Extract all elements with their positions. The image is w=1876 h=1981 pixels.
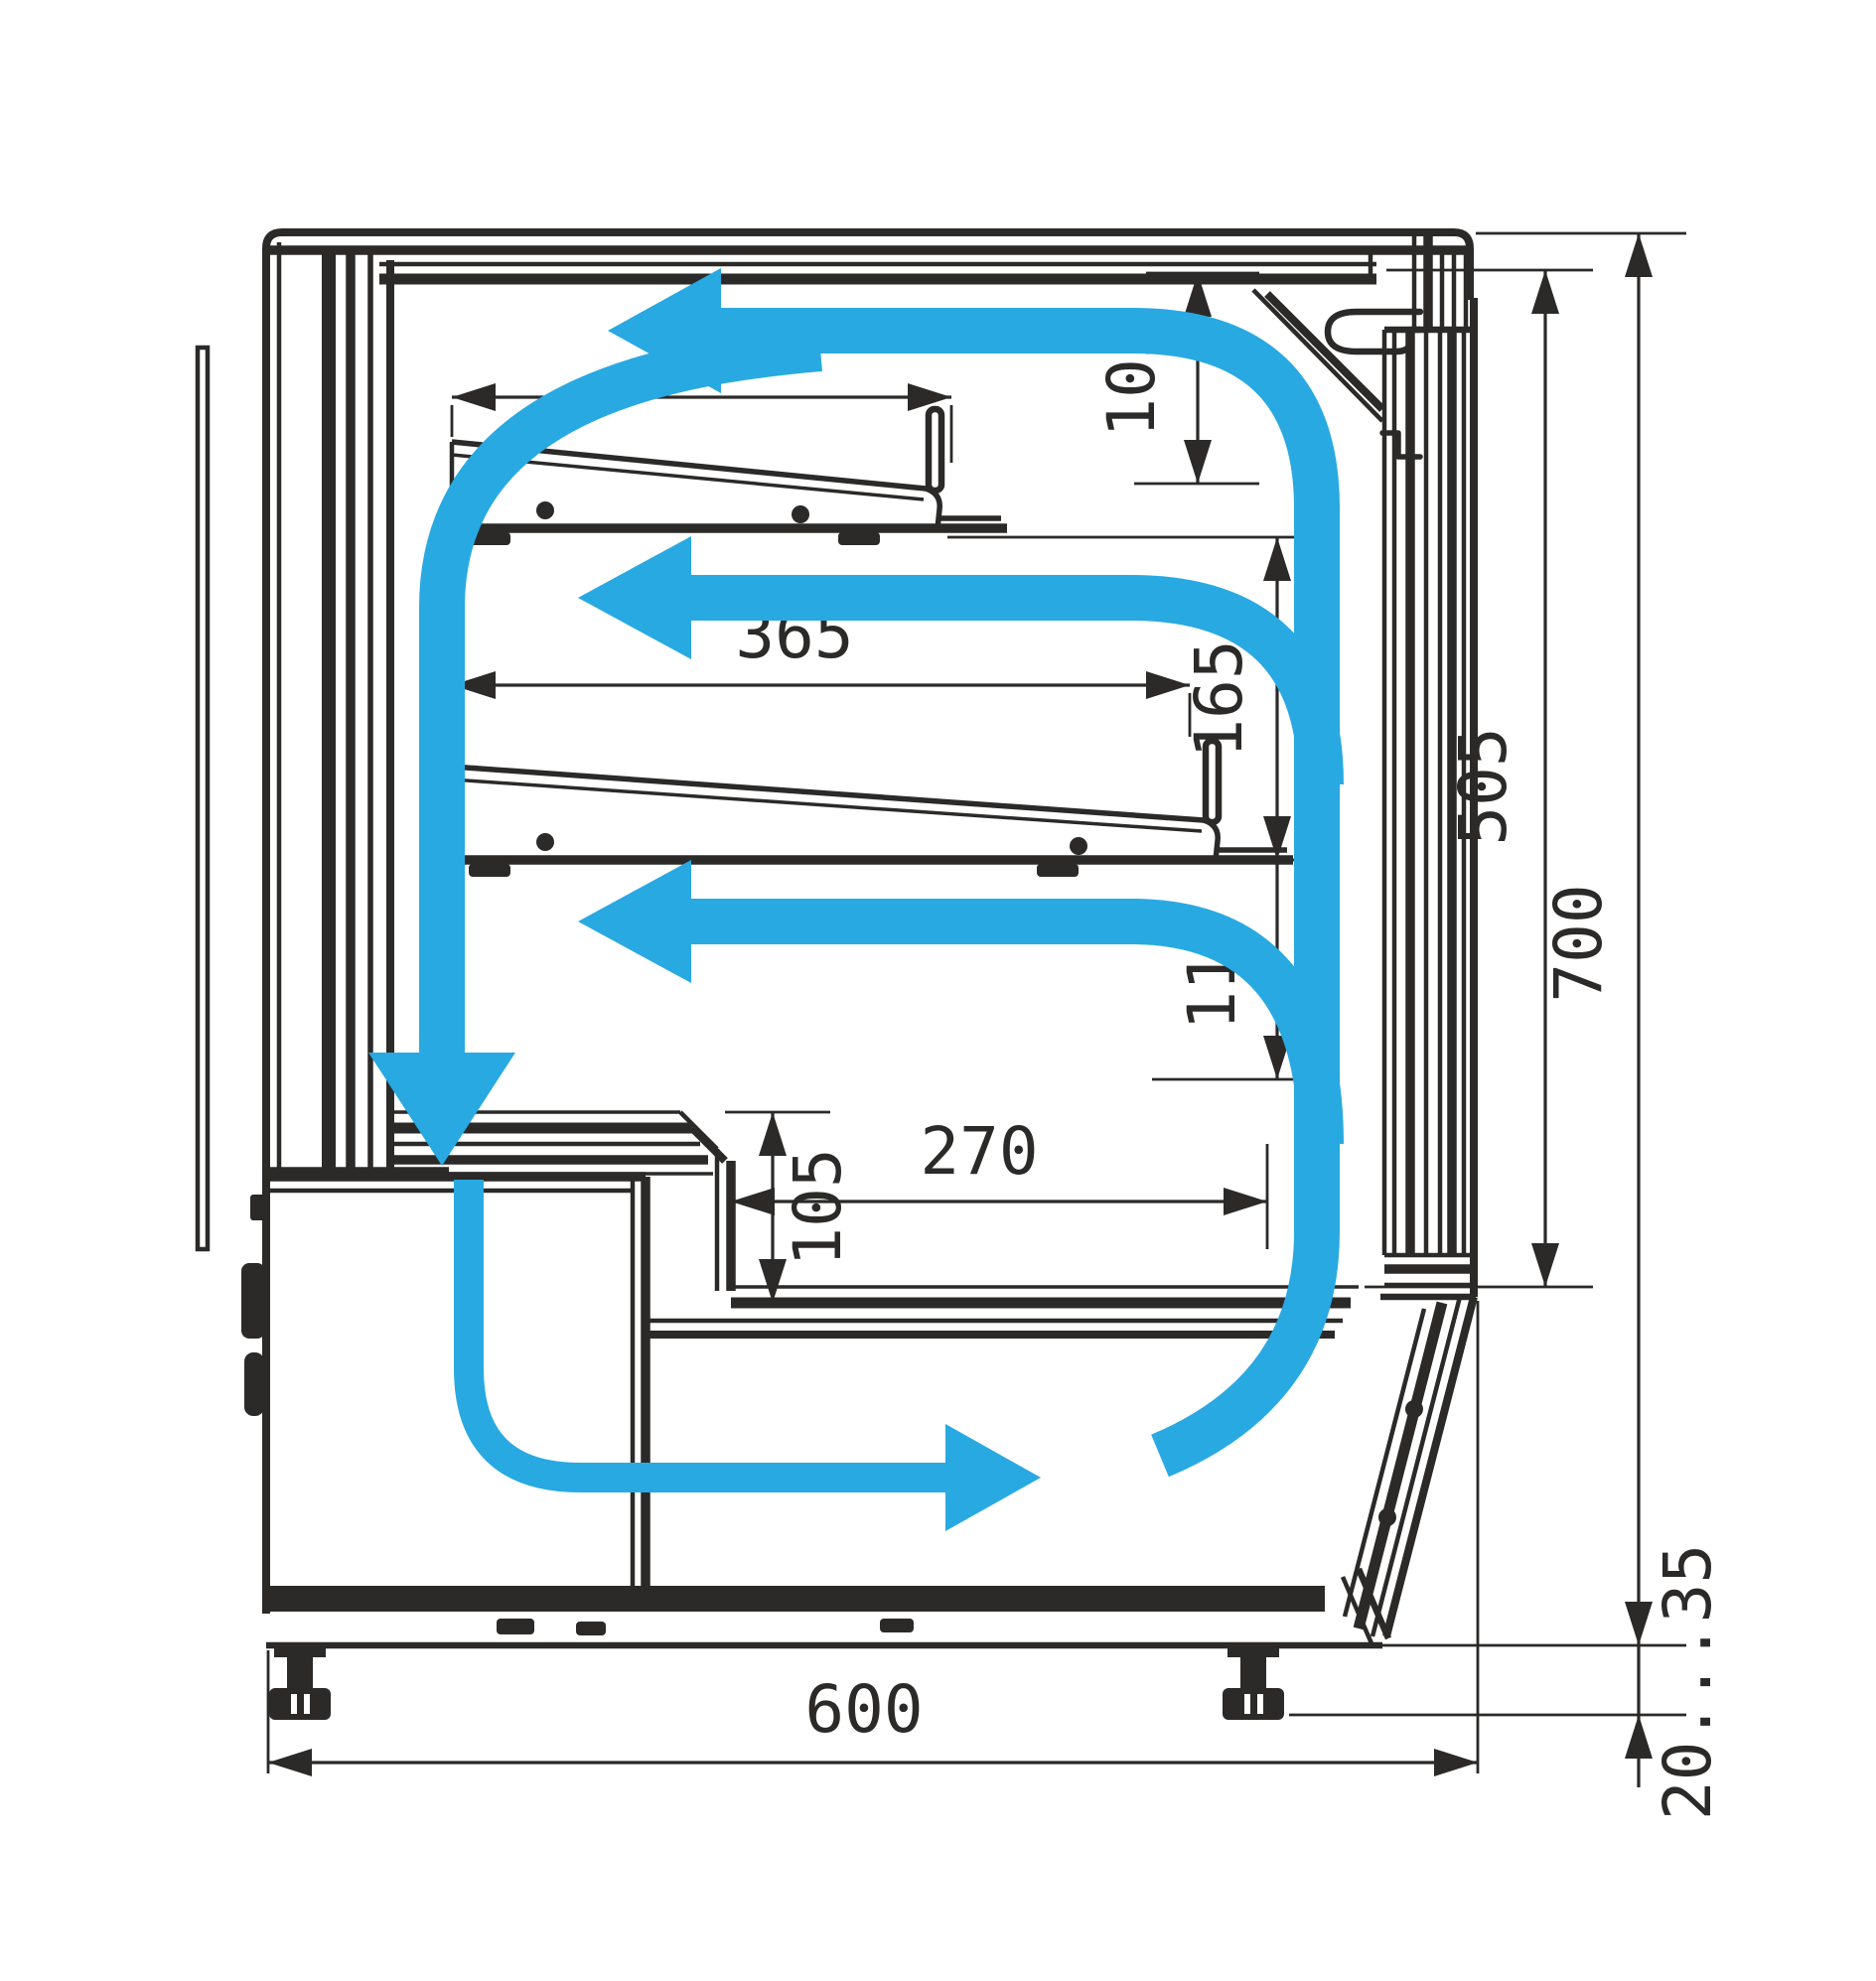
airflow-arrow-right-icon [945,1424,1041,1531]
airflow-bottom-stream [469,1180,945,1478]
dim-opening-height: 505 [1365,270,1593,1287]
airflow-arrow-low-icon [578,860,691,983]
base [266,1569,1388,1645]
airflow-arrow-mid-icon [578,536,691,659]
display-case-section-drawing: 245 105 365 165 [0,0,1876,1981]
airflow [368,268,1321,1531]
shelf-upper-ticket-rail [929,409,941,491]
drawing-canvas: 245 105 365 165 [0,0,1876,1981]
foot-left [269,1645,331,1720]
shelf-lower [452,741,1293,877]
airflow-low-stream [689,921,1321,1144]
dim-label-20-35: 20...35 [1650,1544,1726,1820]
rear-panel [198,348,266,1416]
dim-lower-shelf-depth: 365 [452,597,1190,761]
foot-right [1223,1645,1284,1720]
dim-label-505: 505 [1445,727,1521,845]
dim-label-105-low: 105 [780,1148,856,1266]
front-slant-panel [1345,1297,1474,1636]
dim-top-clearance: 105 [1093,273,1259,484]
dim-label-270: 270 [920,1113,1038,1190]
dim-well-height: 105 [725,1112,856,1303]
well-floor [646,1287,1359,1335]
dim-label-600: 600 [804,1671,923,1748]
dim-label-165: 165 [1181,639,1257,758]
dim-label-700: 700 [1540,884,1617,1002]
